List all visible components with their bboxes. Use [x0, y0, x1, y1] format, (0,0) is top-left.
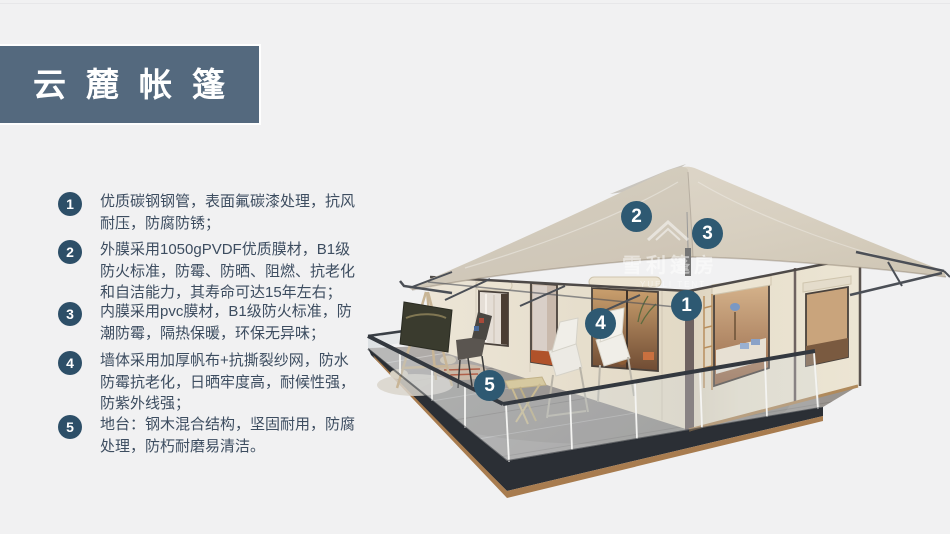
callout-1: 1 — [671, 290, 702, 321]
slide: 云麓帐篷 1 优质碳钢钢管，表面氟碳漆处理，抗风耐压，防腐防锈； 2 外膜采用1… — [0, 0, 950, 534]
watermark-cn: 雪利篷房 — [622, 253, 718, 277]
callout-2: 2 — [621, 201, 652, 232]
watermark-en: YUELI TENT — [640, 280, 706, 289]
callout-3: 3 — [692, 218, 723, 249]
callout-4: 4 — [585, 308, 616, 339]
tent-illustration: 雪利篷房 YUELI TENT — [0, 0, 950, 534]
callout-5: 5 — [474, 370, 505, 401]
easel-painting — [400, 302, 452, 352]
